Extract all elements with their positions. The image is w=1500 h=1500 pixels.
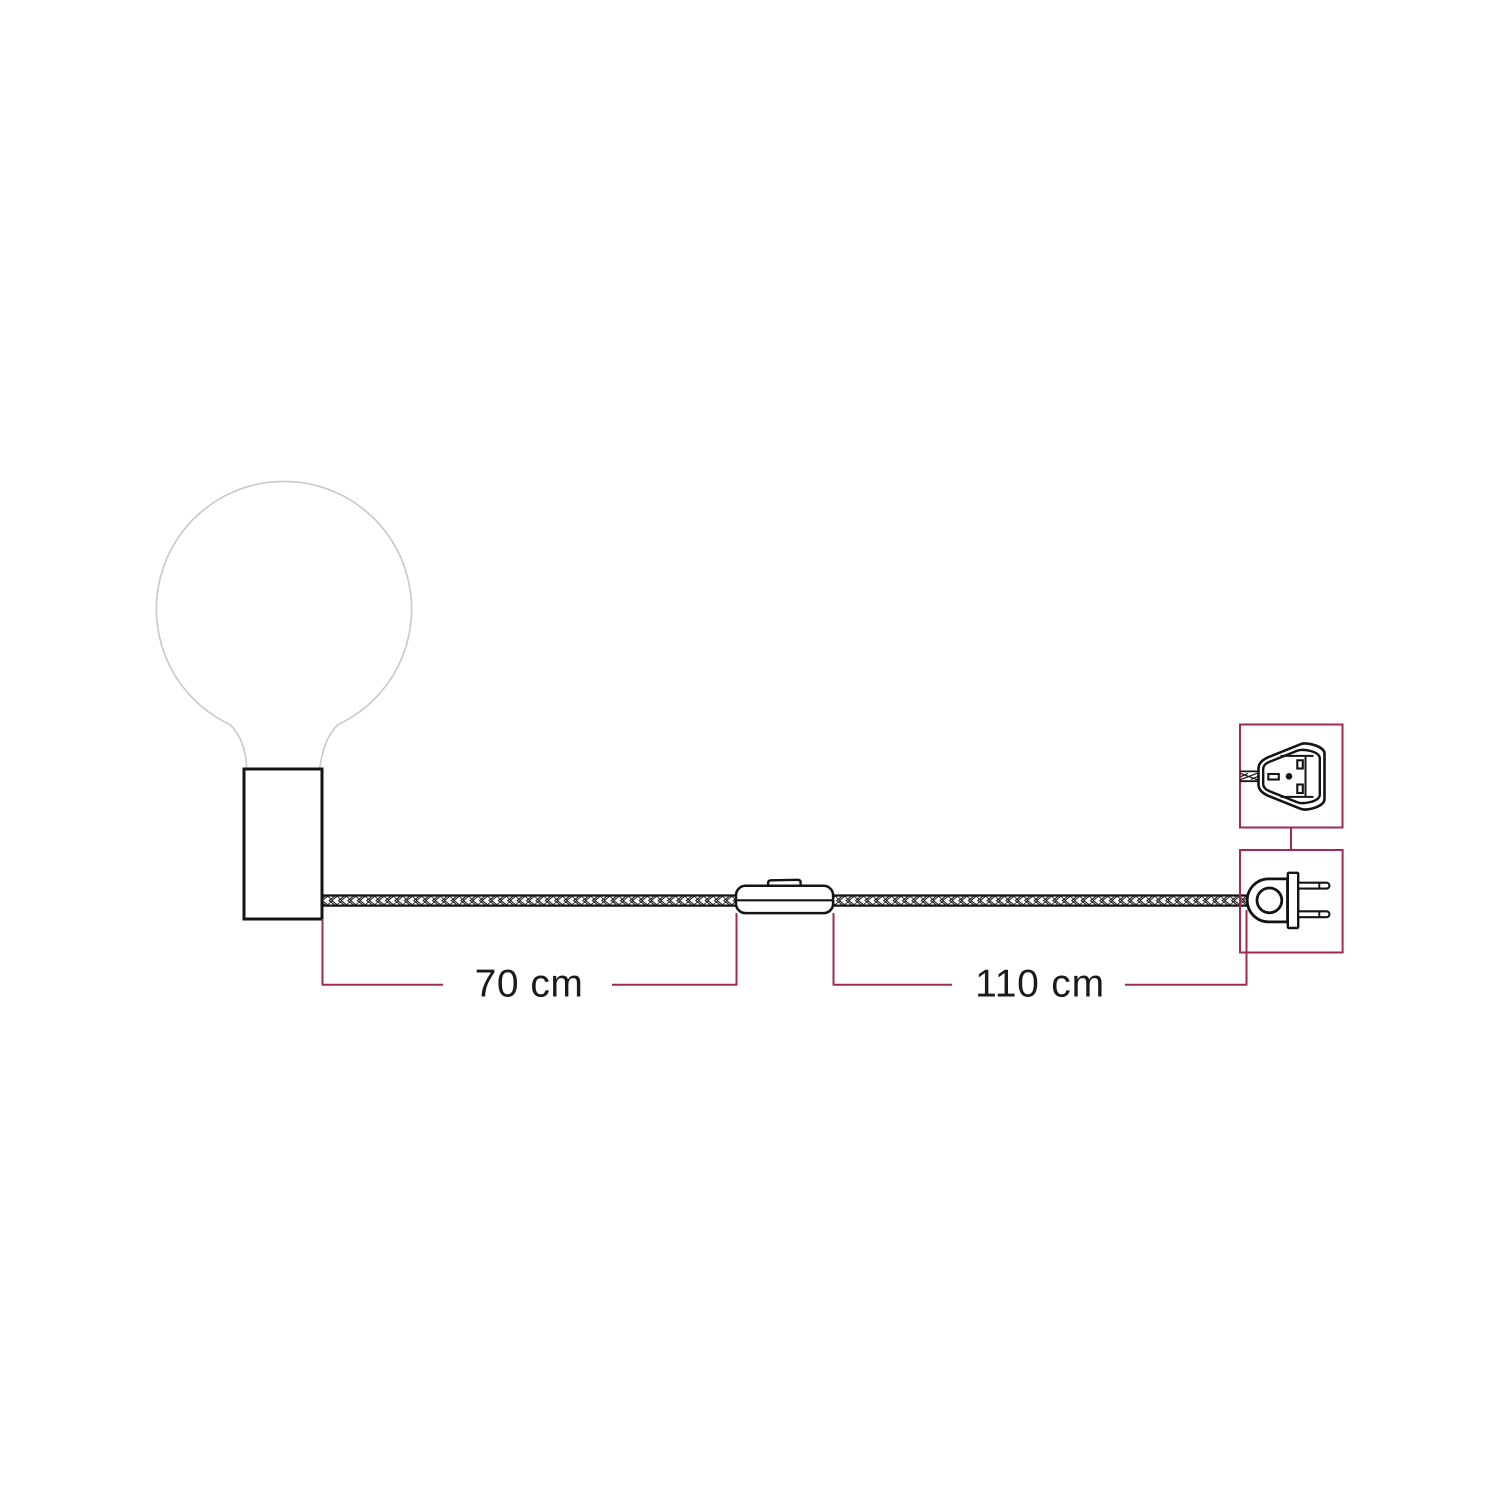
svg-text:110 cm: 110 cm [975, 963, 1105, 1006]
svg-text:70 cm: 70 cm [475, 963, 584, 1006]
